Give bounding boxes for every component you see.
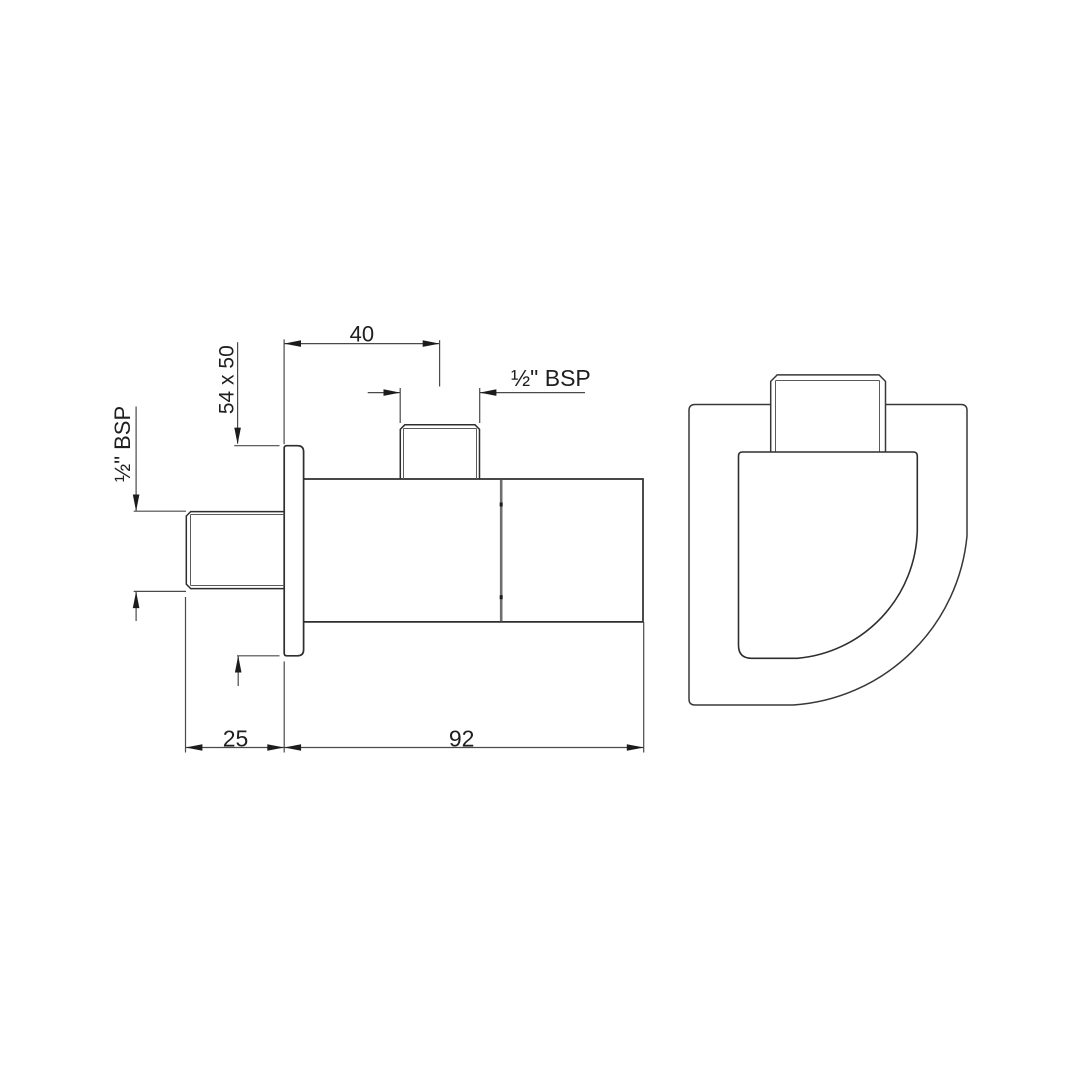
- svg-text:½" BSP: ½" BSP: [511, 365, 591, 391]
- svg-text:92: 92: [449, 726, 475, 752]
- svg-text:½" BSP: ½" BSP: [110, 406, 135, 482]
- svg-text:54 x 50: 54 x 50: [216, 345, 239, 414]
- svg-text:40: 40: [350, 322, 374, 347]
- svg-text:25: 25: [223, 726, 249, 752]
